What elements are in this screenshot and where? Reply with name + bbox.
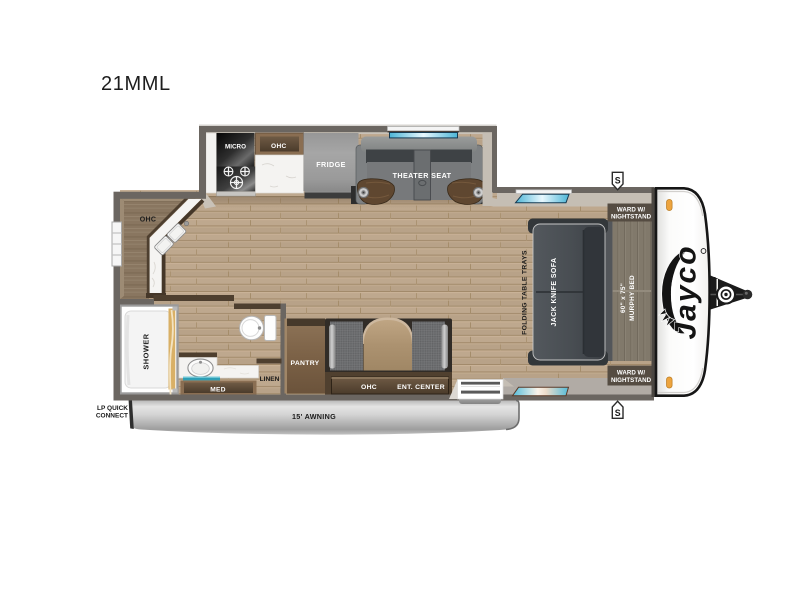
- svg-text:60" x 75": 60" x 75": [620, 283, 627, 313]
- svg-text:OHC: OHC: [361, 384, 377, 391]
- svg-text:LINEN: LINEN: [260, 376, 280, 383]
- svg-text:Jayco: Jayco: [670, 244, 703, 339]
- svg-text:PANTRY: PANTRY: [291, 360, 320, 367]
- svg-text:JACK KNIFE SOFA: JACK KNIFE SOFA: [551, 257, 558, 326]
- svg-text:FRIDGE: FRIDGE: [316, 160, 346, 169]
- svg-text:S: S: [615, 408, 621, 418]
- svg-text:NIGHTSTAND: NIGHTSTAND: [611, 214, 652, 221]
- svg-text:MED: MED: [210, 386, 226, 393]
- svg-text:WARD W/: WARD W/: [617, 206, 645, 213]
- svg-text:21MML: 21MML: [101, 73, 171, 95]
- svg-text:ENT. CENTER: ENT. CENTER: [397, 384, 445, 391]
- svg-text:CONNECT: CONNECT: [96, 413, 128, 420]
- svg-text:MURPHY BED: MURPHY BED: [629, 275, 636, 321]
- svg-text:NIGHTSTAND: NIGHTSTAND: [611, 377, 652, 384]
- svg-text:OHC: OHC: [140, 217, 156, 224]
- svg-text:WARD W/: WARD W/: [617, 370, 645, 377]
- svg-text:SHOWER: SHOWER: [142, 333, 151, 369]
- svg-text:MICRO: MICRO: [225, 143, 246, 150]
- svg-text:S: S: [615, 175, 621, 185]
- svg-text:OHC: OHC: [271, 143, 287, 150]
- svg-text:THEATER SEAT: THEATER SEAT: [393, 171, 452, 180]
- svg-text:15' AWNING: 15' AWNING: [292, 412, 336, 421]
- svg-text:FOLDING TABLE TRAYS: FOLDING TABLE TRAYS: [522, 250, 529, 335]
- svg-text:LP QUICK: LP QUICK: [97, 405, 128, 412]
